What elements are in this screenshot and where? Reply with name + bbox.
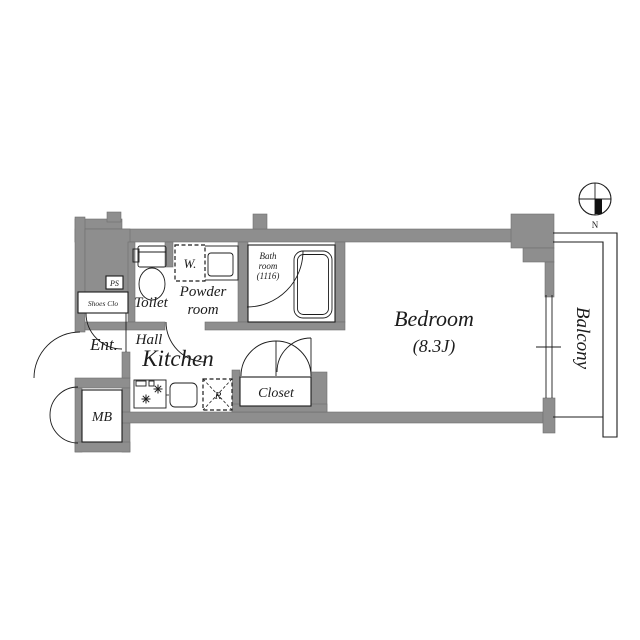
wall-segment	[543, 398, 555, 433]
burner-icon	[154, 385, 163, 394]
bath-room-label-line1: Bath	[260, 251, 277, 261]
wall-segment	[511, 214, 554, 248]
floor-plan: N Bedroom (8.3J) Balcony Toilet Powder r…	[0, 0, 640, 640]
bath-room-label-line2: room	[259, 261, 278, 271]
wall-segment	[545, 262, 554, 297]
mb-label: MB	[91, 410, 113, 425]
shoes-closet-label: Shoes Clo	[88, 299, 118, 308]
fridge-label: R	[214, 390, 222, 402]
balcony-label: Balcony	[572, 307, 593, 370]
wall-segment	[107, 212, 121, 222]
wall-segment	[238, 242, 248, 322]
wall-segment	[122, 352, 130, 378]
stove-body	[134, 380, 166, 408]
wall-segment	[253, 214, 267, 229]
wall-segment	[75, 217, 85, 332]
washbasin-icon	[203, 246, 238, 280]
bedroom-label: Bedroom	[394, 306, 474, 331]
vanity-bowl	[208, 253, 233, 276]
closet-door-arc	[276, 341, 311, 376]
wall-segment	[205, 322, 345, 330]
closet-door-arc	[241, 341, 276, 376]
wall-segment	[122, 412, 543, 423]
ps-label: PS	[109, 279, 119, 288]
bath-room-label-line3: (1116)	[257, 271, 280, 281]
entrance-door-arc	[34, 332, 80, 378]
wall-segment	[523, 248, 554, 262]
toilet-icon	[133, 246, 166, 300]
entrance-label: Ent.	[89, 335, 118, 354]
bedroom-door-arc	[277, 338, 311, 372]
sink-icon	[166, 383, 197, 407]
stove-panel	[149, 381, 154, 386]
stove-grill	[136, 381, 146, 386]
kitchen-label: Kitchen	[141, 346, 214, 371]
compass-needle	[595, 199, 602, 214]
mb-door-arc	[50, 415, 78, 443]
floor-plan-page: N Bedroom (8.3J) Balcony Toilet Powder r…	[0, 0, 640, 640]
stove-icon	[134, 380, 166, 408]
wall-segment	[75, 229, 512, 242]
compass-icon: N	[579, 183, 611, 230]
sink-basin	[170, 383, 197, 407]
washer-label: W.	[184, 256, 197, 271]
closet-label: Closet	[258, 386, 295, 401]
wall-segment	[75, 378, 130, 388]
toilet-label: Toilet	[134, 295, 168, 311]
bedroom-size-label: (8.3J)	[413, 336, 455, 357]
burner-icon	[142, 395, 151, 404]
sliding-window	[536, 295, 561, 398]
toilet-tank	[138, 246, 166, 267]
mb-door-arc	[50, 387, 78, 415]
wall-segment	[335, 242, 345, 322]
compass-north-label: N	[592, 220, 599, 230]
powder-room-label-line2: room	[187, 302, 218, 318]
wall-segment	[85, 322, 165, 330]
wall-segment	[75, 442, 130, 452]
powder-room-label-line1: Powder	[179, 284, 227, 300]
